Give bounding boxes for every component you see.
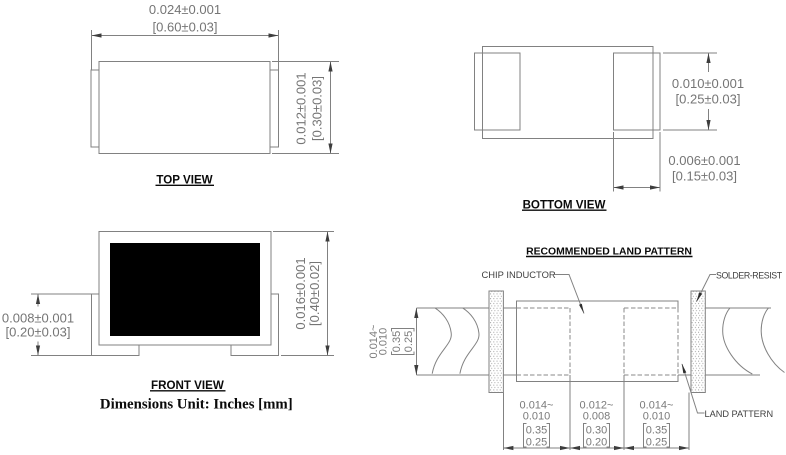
- svg-text:Dimensions Unit: Inches [mm]: Dimensions Unit: Inches [mm]: [100, 397, 293, 413]
- svg-text:0.35: 0.35: [526, 425, 547, 437]
- svg-text:[0.20±0.03]: [0.20±0.03]: [6, 325, 71, 340]
- svg-text:0.008: 0.008: [583, 411, 611, 423]
- svg-text:LAND PATTERN: LAND PATTERN: [705, 409, 774, 419]
- svg-text:[0.15±0.03]: [0.15±0.03]: [672, 169, 737, 184]
- svg-text:FRONT VIEW: FRONT VIEW: [151, 379, 224, 392]
- svg-text:0.35: 0.35: [646, 425, 667, 437]
- svg-text:0.006±0.001: 0.006±0.001: [668, 153, 740, 168]
- svg-text:[0.60±0.03]: [0.60±0.03]: [153, 20, 218, 35]
- svg-text:0.012±0.001: 0.012±0.001: [294, 72, 309, 144]
- svg-text:TOP VIEW: TOP VIEW: [156, 174, 212, 187]
- svg-text:0.25: 0.25: [403, 331, 415, 352]
- svg-text:0.25: 0.25: [646, 437, 667, 449]
- svg-text:0.008±0.001: 0.008±0.001: [2, 311, 74, 326]
- svg-text:0.016±0.001: 0.016±0.001: [293, 257, 308, 329]
- svg-text:[0.25±0.03]: [0.25±0.03]: [676, 92, 741, 107]
- svg-text:0.024±0.001: 0.024±0.001: [149, 2, 221, 17]
- svg-text:0.010: 0.010: [378, 328, 390, 356]
- svg-text:[0.30±0.03]: [0.30±0.03]: [310, 76, 325, 141]
- svg-text:0.010: 0.010: [643, 411, 671, 423]
- svg-text:0.20: 0.20: [586, 437, 607, 449]
- svg-text:CHIP INDUCTOR: CHIP INDUCTOR: [482, 269, 556, 280]
- svg-text:SOLDER-RESIST: SOLDER-RESIST: [716, 271, 783, 281]
- svg-text:0.010±0.001: 0.010±0.001: [672, 76, 744, 91]
- svg-text:0.35: 0.35: [391, 331, 403, 352]
- svg-text:[0.40±0.02]: [0.40±0.02]: [307, 261, 322, 326]
- svg-text:0.30: 0.30: [586, 425, 607, 437]
- svg-text:0.25: 0.25: [526, 437, 547, 449]
- svg-text:0.010: 0.010: [523, 411, 551, 423]
